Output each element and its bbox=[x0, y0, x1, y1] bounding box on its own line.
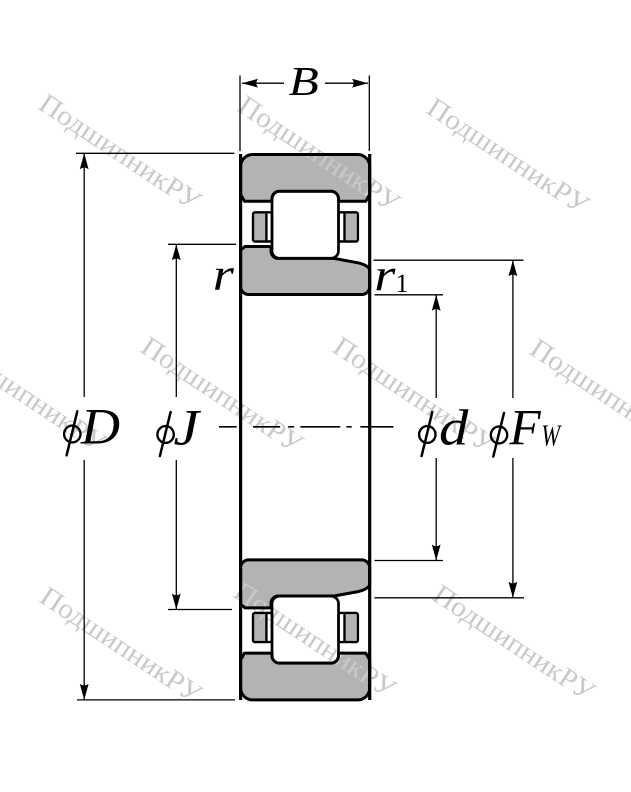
svg-text:r: r bbox=[213, 248, 235, 299]
svg-text:D: D bbox=[80, 399, 120, 455]
svg-text:d: d bbox=[439, 399, 469, 456]
svg-text:B: B bbox=[289, 59, 319, 104]
svg-text:F: F bbox=[509, 401, 542, 457]
svg-text:r: r bbox=[374, 249, 396, 300]
svg-text:W: W bbox=[541, 418, 562, 452]
svg-text:ПодшипникРУ: ПодшипникРУ bbox=[421, 92, 594, 221]
svg-text:ПодшипникРУ: ПодшипникРУ bbox=[33, 88, 206, 217]
svg-text:1: 1 bbox=[396, 269, 409, 298]
svg-text:J: J bbox=[174, 399, 202, 456]
svg-text:ПодшипникРУ: ПодшипникРУ bbox=[34, 581, 207, 710]
svg-text:ПодшипникРУ: ПодшипникРУ bbox=[327, 331, 500, 460]
